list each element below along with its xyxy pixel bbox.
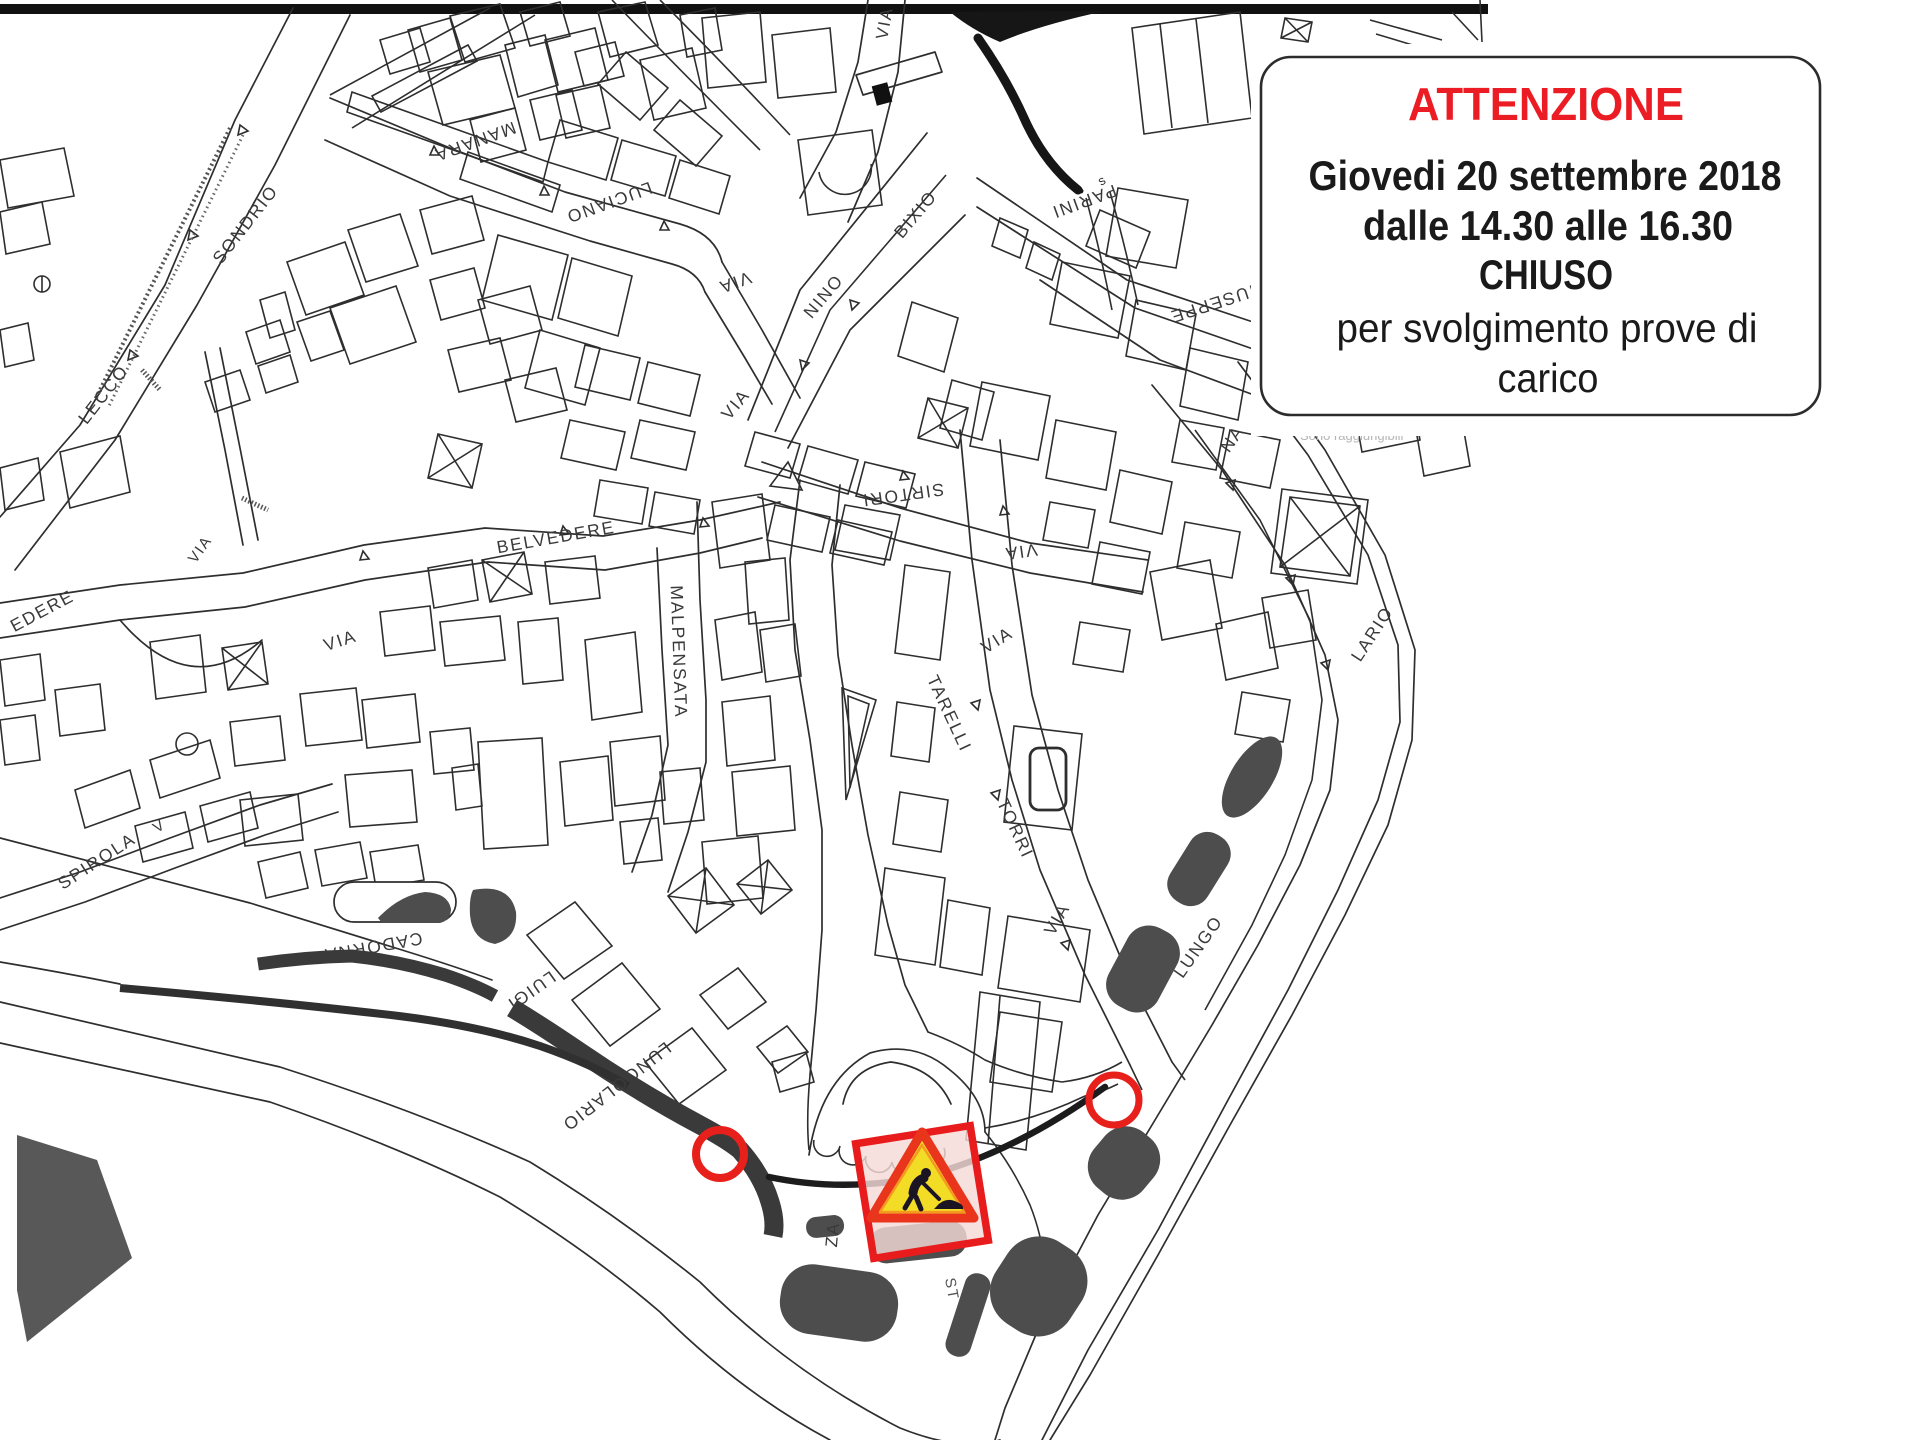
svg-text:ZA: ZA — [822, 1221, 843, 1248]
svg-text:Giovedi 20 settembre 2018: Giovedi 20 settembre 2018 — [1309, 152, 1782, 199]
svg-text:CHIUSO: CHIUSO — [1479, 251, 1613, 298]
svg-text:per svolgimento prove di: per svolgimento prove di — [1337, 305, 1758, 351]
svg-text:ATTENZIONE: ATTENZIONE — [1408, 78, 1684, 130]
svg-text:dalle 14.30 alle 16.30: dalle 14.30 alle 16.30 — [1363, 202, 1733, 249]
svg-text:carico: carico — [1498, 355, 1599, 401]
